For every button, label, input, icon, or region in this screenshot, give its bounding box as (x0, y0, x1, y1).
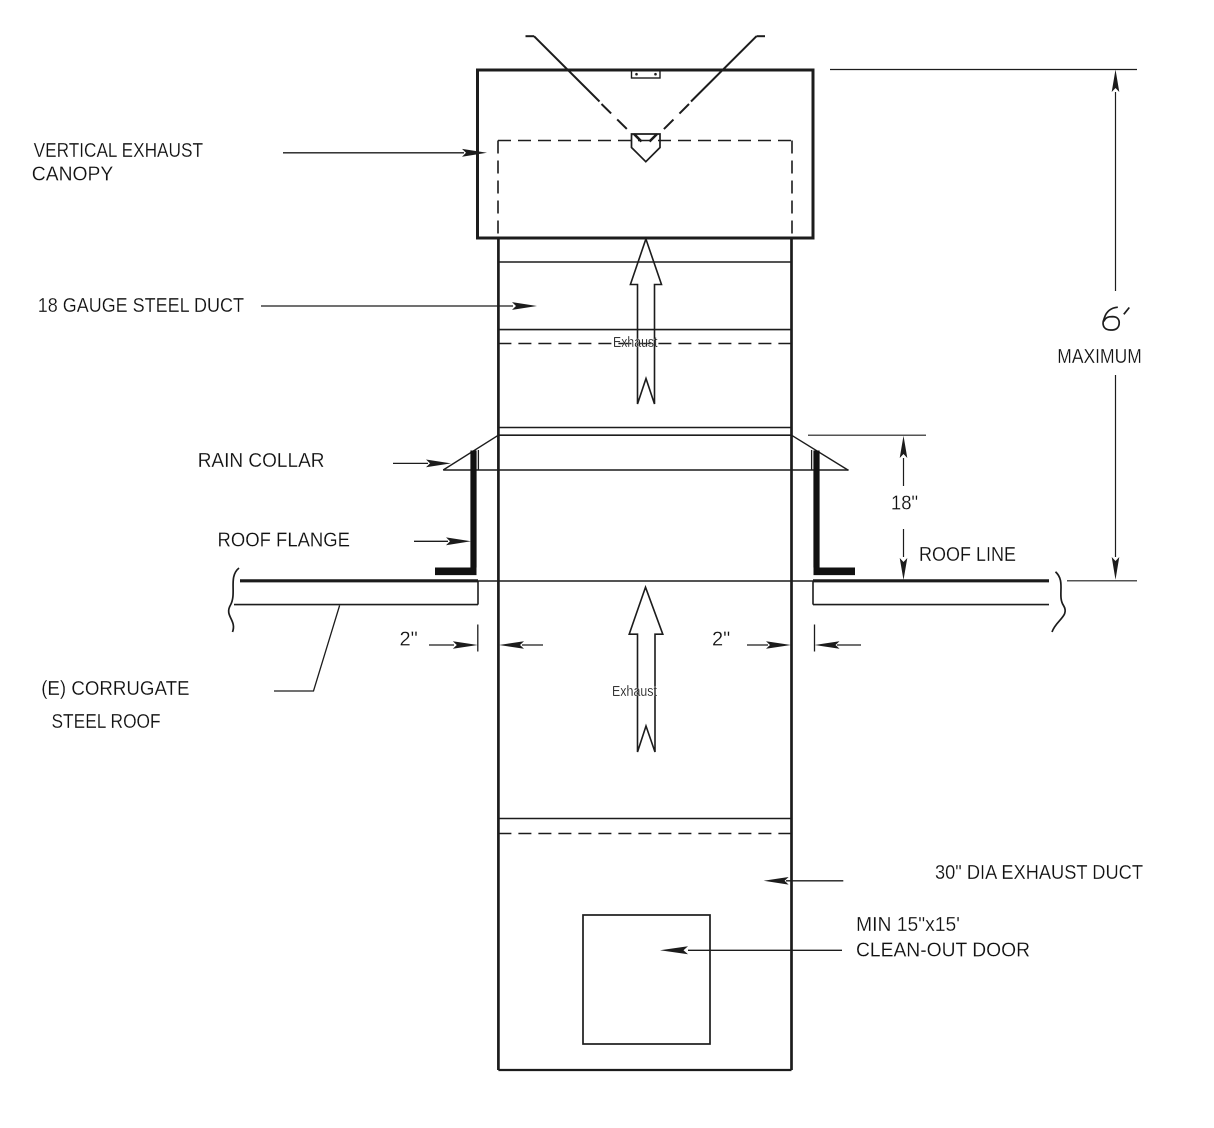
svg-text:CANOPY: CANOPY (32, 163, 114, 185)
svg-text:18 GAUGE STEEL DUCT: 18 GAUGE STEEL DUCT (38, 295, 244, 317)
svg-text:ROOF FLANGE: ROOF FLANGE (218, 530, 351, 552)
svg-text:Exhaust: Exhaust (612, 683, 658, 700)
svg-text:ROOF LINE: ROOF LINE (919, 544, 1016, 566)
svg-text:VERTICAL EXHAUST: VERTICAL EXHAUST (34, 140, 203, 162)
svg-text:Exhaust: Exhaust (613, 334, 658, 351)
svg-text:2": 2" (400, 629, 418, 651)
svg-text:18": 18" (891, 493, 918, 515)
svg-text:MIN 15"x15': MIN 15"x15' (856, 914, 960, 936)
svg-text:MAXIMUM: MAXIMUM (1057, 346, 1142, 368)
svg-text:2": 2" (712, 629, 730, 651)
svg-text:CLEAN-OUT DOOR: CLEAN-OUT DOOR (856, 940, 1030, 962)
svg-text:(E) CORRUGATE: (E) CORRUGATE (41, 678, 189, 700)
svg-text:STEEL ROOF: STEEL ROOF (52, 711, 161, 733)
svg-text:RAIN COLLAR: RAIN COLLAR (198, 450, 325, 472)
svg-text:30" DIA EXHAUST DUCT: 30" DIA EXHAUST DUCT (935, 862, 1143, 884)
